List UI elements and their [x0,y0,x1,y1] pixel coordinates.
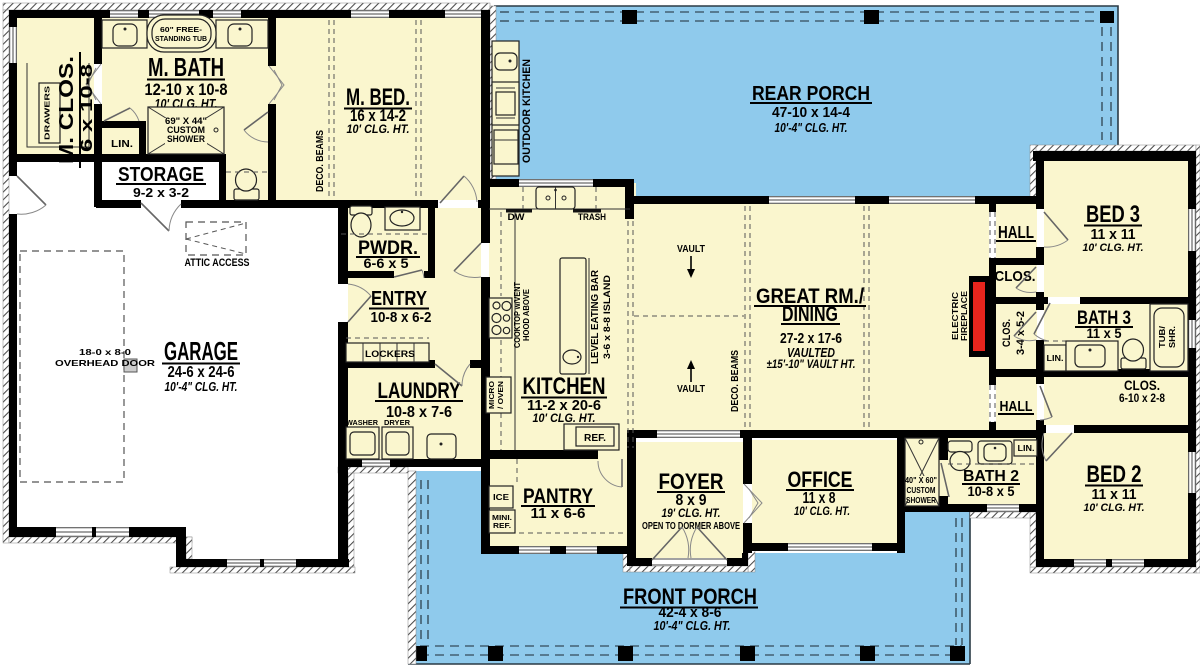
svg-text:HALL: HALL [1000,398,1033,415]
svg-text:10'-4" CLG. HT.: 10'-4" CLG. HT. [775,121,848,135]
svg-text:DW: DW [508,212,526,222]
svg-text:24-6 x 24-6: 24-6 x 24-6 [168,364,235,381]
svg-text:LIN.: LIN. [1047,353,1064,363]
svg-text:STORAGE: STORAGE [118,164,204,186]
svg-text:11 x 5: 11 x 5 [1087,325,1122,341]
svg-text:M. BATH: M. BATH [148,52,224,82]
svg-text:LIN.: LIN. [1018,444,1035,453]
svg-text:SHR.: SHR. [1167,326,1177,348]
svg-text:10'-4" CLG. HT.: 10'-4" CLG. HT. [654,619,731,633]
svg-text:LAUNDRY: LAUNDRY [378,378,461,403]
svg-text:DECO. BEAMS: DECO. BEAMS [314,130,326,192]
svg-text:CLOS.: CLOS. [1001,319,1013,347]
svg-text:3-6 x 8-8 ISLAND: 3-6 x 8-8 ISLAND [602,274,612,359]
svg-text:10' CLG. HT.: 10' CLG. HT. [347,122,410,136]
svg-text:BED 2: BED 2 [1087,461,1142,488]
svg-text:18-0 x 8-0: 18-0 x 8-0 [79,347,131,357]
svg-text:60" FREE-: 60" FREE- [160,25,203,34]
svg-text:KITCHEN: KITCHEN [523,373,606,400]
svg-text:19' CLG. HT.: 19' CLG. HT. [662,506,721,520]
svg-text:OPEN TO DORMER ABOVE: OPEN TO DORMER ABOVE [642,520,740,532]
svg-text:COOKTOP w/VENT: COOKTOP w/VENT [513,282,522,348]
svg-text:10' CLG. HT.: 10' CLG. HT. [533,411,596,425]
svg-text:LEVEL EATING BAR: LEVEL EATING BAR [590,269,601,364]
svg-text:GARAGE: GARAGE [164,336,238,366]
svg-text:DINING: DINING [782,303,838,326]
svg-text:FIREPLACE: FIREPLACE [959,291,969,341]
svg-text:TRASH: TRASH [578,212,606,222]
svg-text:10-8 x 7-6: 10-8 x 7-6 [386,404,452,421]
svg-text:REF.: REF. [493,523,511,530]
svg-text:10-8 x 5: 10-8 x 5 [968,483,1015,499]
svg-text:47-10 x 14-4: 47-10 x 14-4 [772,104,851,121]
svg-text:VAULT: VAULT [677,243,705,255]
svg-text:REAR PORCH: REAR PORCH [752,83,870,105]
svg-text:ICE: ICE [493,493,510,502]
svg-text:WASHER: WASHER [346,420,378,427]
svg-text:MICRO: MICRO [487,381,496,409]
svg-text:DRYER: DRYER [384,420,410,427]
svg-text:10' CLG. HT.: 10' CLG. HT. [794,504,850,518]
svg-text:11 x 11: 11 x 11 [1091,226,1136,243]
svg-text:HALL: HALL [998,222,1034,242]
svg-text:FOYER: FOYER [659,469,724,494]
svg-text:VAULT: VAULT [677,383,705,395]
svg-text:6 x 10-8: 6 x 10-8 [77,64,96,152]
svg-text:LIN.: LIN. [111,139,133,150]
svg-text:27-2 x 17-6: 27-2 x 17-6 [780,330,842,347]
svg-text:ENTRY: ENTRY [371,288,428,310]
svg-text:DECO. BEAMS: DECO. BEAMS [729,350,741,412]
svg-text:11 x 6-6: 11 x 6-6 [531,506,586,522]
svg-text:SHOWER: SHOWER [167,134,205,144]
svg-text:40" X 60": 40" X 60" [905,475,937,485]
svg-text:SHOWER: SHOWER [906,495,936,505]
svg-text:9-2 x 3-2: 9-2 x 3-2 [133,185,189,200]
svg-text:6-10 x 2-8: 6-10 x 2-8 [1119,391,1165,405]
svg-text:OUTDOOR KITCHEN: OUTDOOR KITCHEN [521,59,533,163]
svg-text:LOCKERS: LOCKERS [365,349,415,359]
svg-text:DRAWERS: DRAWERS [43,86,52,140]
svg-text:PANTRY: PANTRY [523,485,593,508]
svg-text:STANDING TUB: STANDING TUB [155,34,208,43]
svg-text:CLOS.: CLOS. [995,268,1036,285]
svg-text:ATTIC ACCESS: ATTIC ACCESS [185,257,250,269]
svg-text:BED 3: BED 3 [1086,201,1140,228]
svg-text:TUB/: TUB/ [1157,325,1167,348]
svg-text:±15'-10" VAULT HT.: ±15'-10" VAULT HT. [767,359,856,371]
svg-text:HOOD ABOVE: HOOD ABOVE [522,288,531,341]
svg-text:OFFICE: OFFICE [788,467,853,492]
svg-text:MINI.: MINI. [492,515,512,522]
svg-text:REF.: REF. [584,433,606,444]
svg-text:CUSTOM: CUSTOM [907,485,936,495]
svg-text:/ OVEN: / OVEN [496,381,505,409]
svg-text:10-8 x 6-2: 10-8 x 6-2 [371,309,432,326]
svg-text:VAULTED: VAULTED [787,346,835,360]
svg-text:10' CLG. HT.: 10' CLG. HT. [1083,242,1144,254]
svg-text:6-6 x 5: 6-6 x 5 [364,255,409,271]
svg-text:M. CLOS.: M. CLOS. [56,56,78,164]
svg-text:10' CLG. HT.: 10' CLG. HT. [1084,502,1145,514]
svg-text:10'-4" CLG. HT.: 10'-4" CLG. HT. [165,380,238,394]
svg-text:OVERHEAD DOOR: OVERHEAD DOOR [55,358,155,368]
svg-text:11 x 11: 11 x 11 [1092,486,1137,503]
